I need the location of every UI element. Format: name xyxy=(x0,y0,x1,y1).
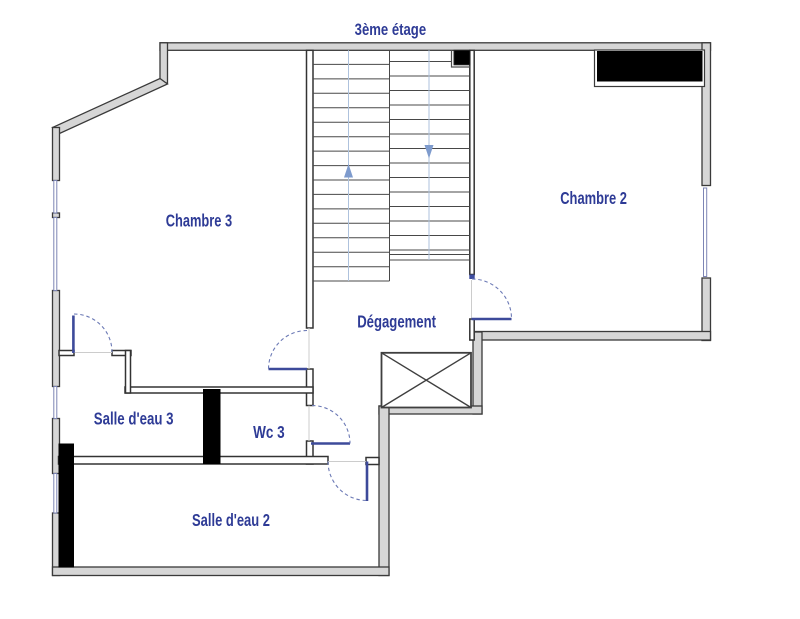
svg-text:3ème étage: 3ème étage xyxy=(355,20,426,39)
svg-text:Wc 3: Wc 3 xyxy=(253,423,285,442)
svg-text:Chambre 3: Chambre 3 xyxy=(166,212,233,232)
svg-text:Salle d'eau 2: Salle d'eau 2 xyxy=(192,511,270,531)
svg-text:Chambre 2: Chambre 2 xyxy=(560,189,627,209)
svg-text:Dégagement: Dégagement xyxy=(357,313,436,332)
svg-text:Salle d'eau 3: Salle d'eau 3 xyxy=(94,410,174,429)
